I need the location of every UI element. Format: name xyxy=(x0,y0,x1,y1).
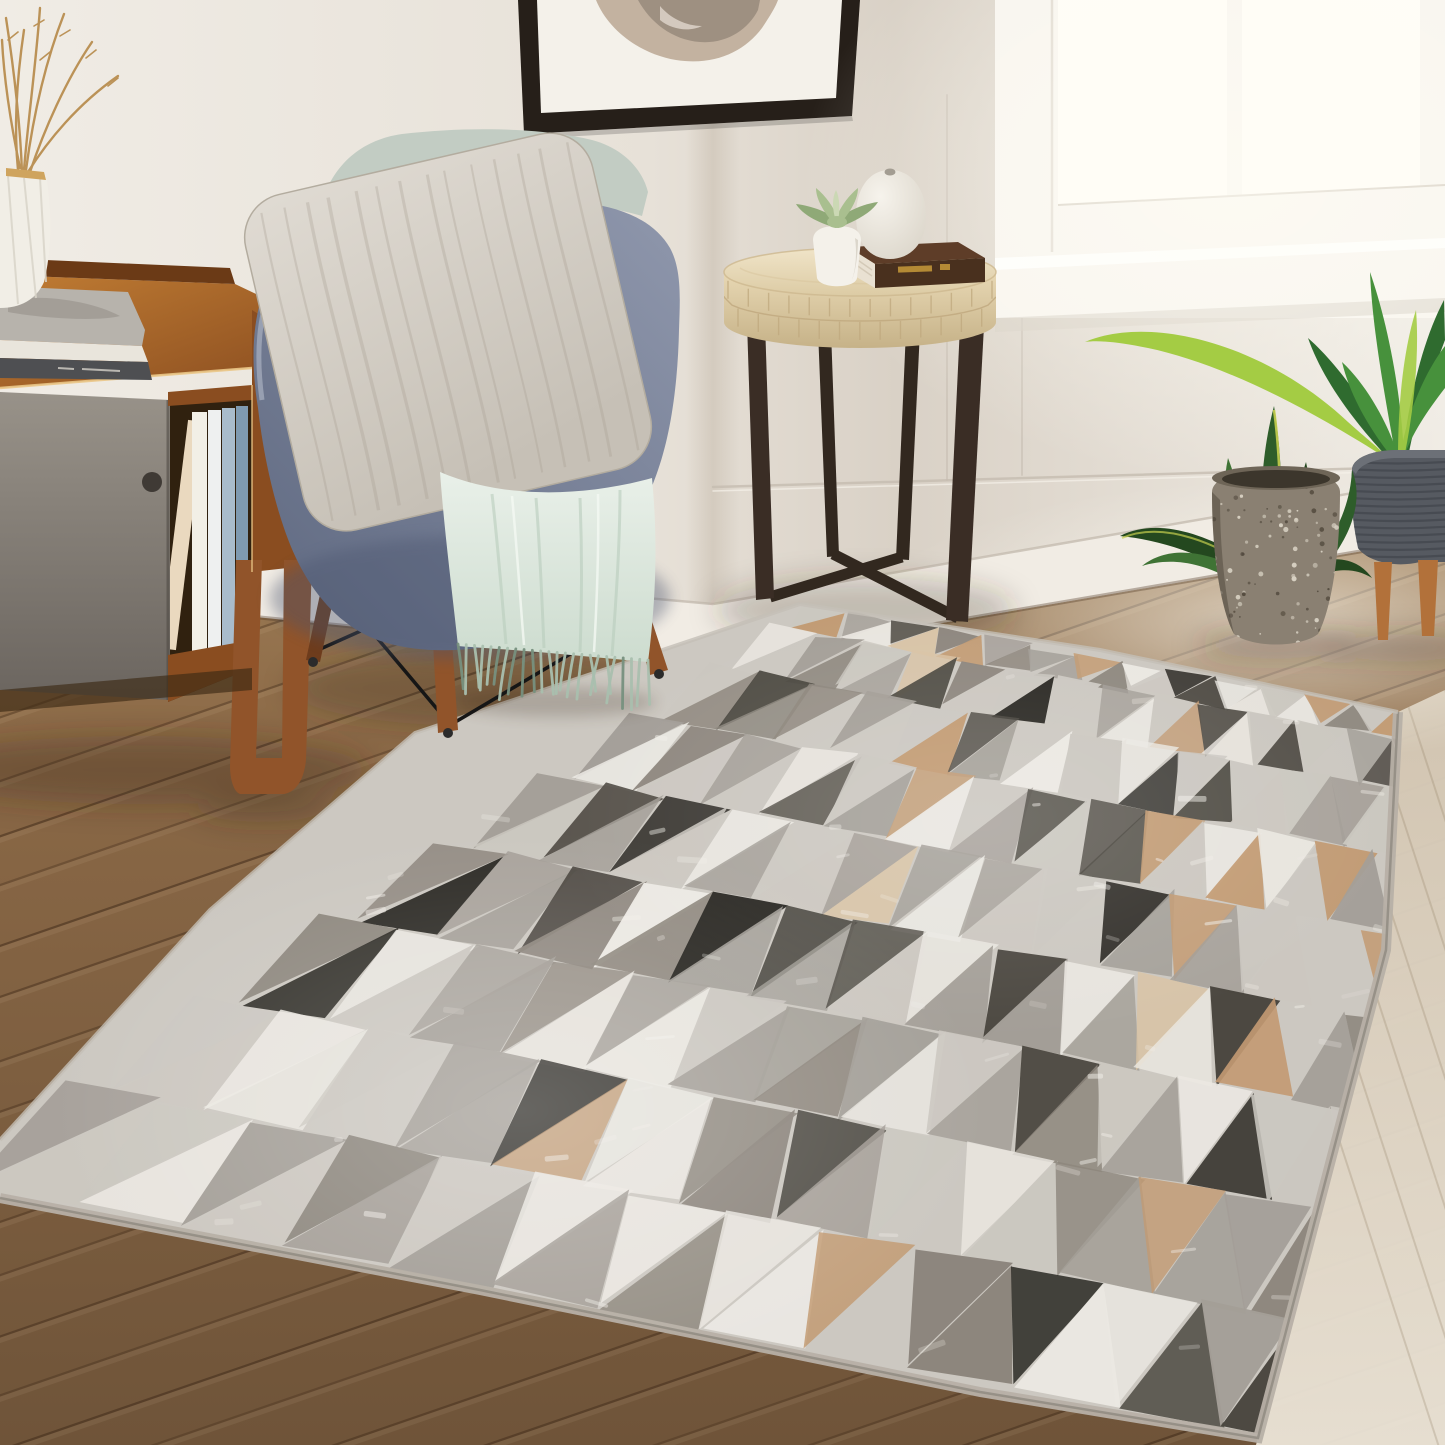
leg-glide xyxy=(308,657,318,667)
credenza-door xyxy=(0,392,170,700)
vase-opening xyxy=(885,169,896,176)
leg-glide xyxy=(654,669,664,679)
white-pot xyxy=(813,226,861,286)
leg-glide xyxy=(443,728,453,738)
framed-artwork xyxy=(518,0,860,139)
door-finger-hole xyxy=(142,472,162,492)
living-room-photo xyxy=(0,0,1445,1445)
snake-plant-pot xyxy=(1212,466,1340,645)
living-room-scene xyxy=(0,0,1445,1445)
gold-title xyxy=(898,265,932,272)
throw-fabric xyxy=(440,472,655,662)
pot-soil xyxy=(1222,470,1330,488)
gold-mark xyxy=(940,264,950,270)
